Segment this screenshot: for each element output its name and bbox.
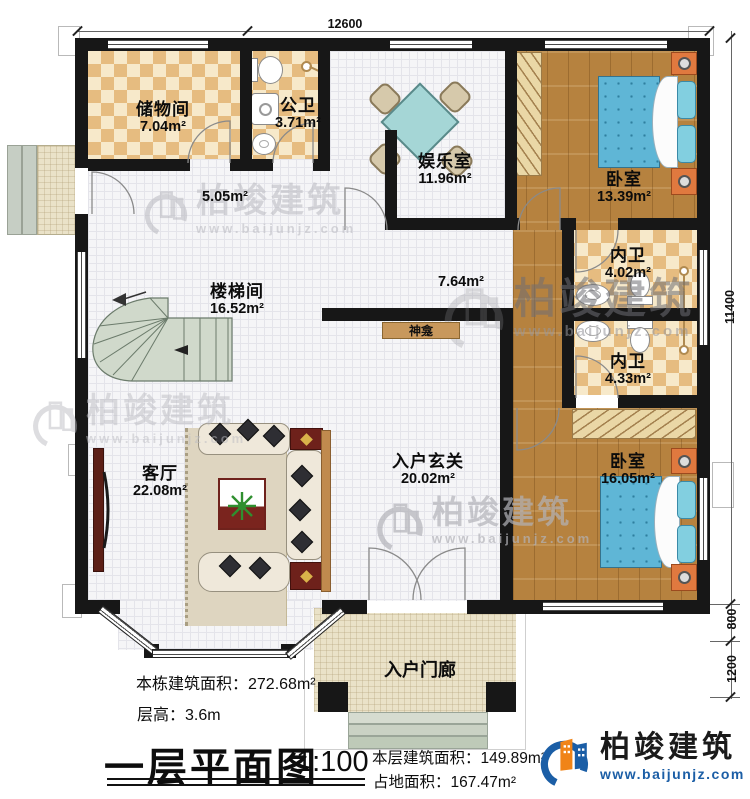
- toilet-bowl: [258, 56, 283, 84]
- wall-bath-mid: [562, 308, 710, 321]
- floor-corridor: [513, 230, 562, 408]
- floor-area: 本层建筑面积：149.89m²: [372, 746, 546, 768]
- room-area: 7.04m²: [103, 119, 223, 135]
- room-name: 公卫: [258, 96, 338, 115]
- room-area: 22.08m²: [100, 483, 220, 499]
- wall-storage-south: [230, 159, 273, 171]
- window: [77, 252, 86, 358]
- room-name: 卧室: [564, 170, 684, 189]
- room-label-bedroom1: 卧室 13.39m²: [564, 170, 684, 205]
- window: [699, 250, 708, 345]
- wall-bath2-south: [618, 395, 710, 408]
- sofa-bottom: [198, 552, 290, 592]
- corridor-area-label: 7.64m²: [411, 274, 511, 290]
- bed-blanket: [600, 476, 662, 568]
- window: [390, 40, 472, 49]
- room-name: 卧室: [568, 452, 688, 471]
- bed-blanket: [598, 76, 660, 168]
- side-porch: [7, 145, 77, 235]
- company-name: 柏竣建筑: [600, 732, 745, 764]
- dim-line-top: [78, 31, 710, 32]
- side-table: [290, 562, 323, 590]
- room-label-entertainment: 娱乐室 11.96m²: [388, 152, 502, 187]
- room-label-living: 客厅 22.08m²: [100, 464, 220, 499]
- wall-bedroom1-south: [560, 218, 576, 230]
- nightstand-knob: [678, 57, 691, 70]
- plan-scale: 1:100: [296, 746, 369, 779]
- footprint-area: 占地面积：167.47m²: [373, 770, 516, 792]
- wardrobe: [516, 52, 542, 176]
- washbasin: [576, 320, 610, 342]
- nightstand-knob: [678, 571, 691, 584]
- room-area: 11.96m²: [388, 171, 502, 187]
- room-area: 4.02m²: [578, 265, 678, 281]
- company-logo: 柏竣建筑 www.baijunjz.com: [538, 732, 745, 792]
- coffee-table: [218, 478, 266, 530]
- star-inlay-icon: [300, 570, 313, 583]
- toilet-tank: [627, 296, 653, 305]
- wall-storage-bath: [240, 51, 252, 159]
- room-label-bath1: 内卫 4.02m²: [578, 246, 678, 281]
- room-label-bath2: 内卫 4.33m²: [578, 352, 678, 387]
- room-name: 内卫: [578, 352, 678, 371]
- towel-ring: [679, 345, 689, 355]
- side-table: [290, 428, 323, 450]
- side-porch-step-line: [21, 145, 23, 235]
- porch-step: [348, 712, 488, 724]
- bay-window-center: [152, 649, 288, 658]
- wardrobe: [572, 409, 696, 439]
- room-name: 客厅: [100, 464, 220, 483]
- floor-height: 层高：3.6m: [137, 701, 221, 725]
- dim-ext: [710, 697, 740, 698]
- bed-sheet-fold: [652, 76, 678, 168]
- room-label-stairwell: 楼梯间 16.52m²: [177, 282, 297, 317]
- room-label-storage: 储物间 7.04m²: [103, 100, 223, 135]
- partition-screen: [321, 430, 331, 592]
- room-area: 4.33m²: [578, 371, 678, 387]
- entry-door-sill: [367, 601, 467, 613]
- nightstand: [671, 564, 697, 591]
- room-name: 入户玄关: [358, 452, 498, 471]
- room-label-foyer: 入户玄关 20.02m²: [358, 452, 498, 487]
- bed-pillow: [677, 525, 696, 563]
- title-underline: [107, 778, 365, 786]
- side-door-sill: [75, 168, 88, 214]
- room-area: 20.02m²: [358, 471, 498, 487]
- room-area: 16.05m²: [568, 471, 688, 487]
- room-label-public-bath: 公卫 3.71m²: [258, 96, 338, 131]
- company-website: www.baijunjz.com: [600, 766, 745, 782]
- dim-right-1200-label: 1200: [725, 645, 739, 693]
- shrine-niche: 神龛: [382, 322, 460, 339]
- room-name: 储物间: [103, 100, 223, 119]
- room-name: 娱乐室: [388, 152, 502, 171]
- company-logo-icon: [538, 732, 594, 792]
- basin-drain-icon: [259, 140, 269, 148]
- building-total-area: 本栋建筑面积：272.68m²: [136, 670, 316, 694]
- window: [545, 40, 667, 49]
- bed: [598, 76, 697, 168]
- window: [108, 40, 208, 49]
- wall-shrine: [322, 308, 512, 321]
- porch-pillar: [318, 682, 348, 712]
- entry-porch-label: 入户门廊: [350, 656, 490, 682]
- wall-storage-south: [75, 159, 190, 171]
- toilet-bowl: [630, 327, 650, 353]
- dim-right-main-label: 11400: [723, 279, 737, 335]
- floor-plan-canvas: 柏竣建筑 www.baijunjz.com 柏竣建筑 www.baijunjz.…: [0, 0, 750, 799]
- towel-ring: [679, 266, 689, 276]
- hall-area-label: 5.05m²: [175, 189, 275, 205]
- room-area: 13.39m²: [564, 189, 684, 205]
- dim-ext: [710, 641, 740, 642]
- wall-entertainment-south: [385, 218, 520, 230]
- basin-drain-icon: [585, 326, 601, 336]
- wall-bedroom1-west: [505, 38, 517, 230]
- side-porch-floor: [37, 145, 77, 235]
- wall-bath2-south: [562, 395, 576, 408]
- nightstand: [671, 52, 697, 75]
- window: [699, 478, 708, 560]
- wall-bedroom1-south: [618, 218, 710, 230]
- bed: [600, 476, 697, 568]
- room-label-bedroom2: 卧室 16.05m²: [568, 452, 688, 487]
- porch-pillar: [486, 682, 516, 712]
- basin-drain-icon: [585, 290, 601, 300]
- bed-pillow: [677, 125, 696, 163]
- room-name: 内卫: [578, 246, 678, 265]
- porch-step: [348, 724, 488, 736]
- wall-left: [75, 38, 88, 168]
- room-area: 3.71m²: [258, 115, 338, 131]
- room-name: 楼梯间: [177, 282, 297, 301]
- star-inlay-icon: [300, 433, 313, 446]
- wall-foyer-east: [500, 308, 513, 614]
- dim-right-800-label: 800: [725, 599, 739, 639]
- washbasin: [252, 133, 276, 155]
- window: [543, 602, 663, 611]
- bed-pillow: [677, 81, 696, 119]
- dim-top-label: 12600: [315, 17, 375, 31]
- washbasin: [576, 284, 610, 306]
- room-area: 16.52m²: [177, 301, 297, 317]
